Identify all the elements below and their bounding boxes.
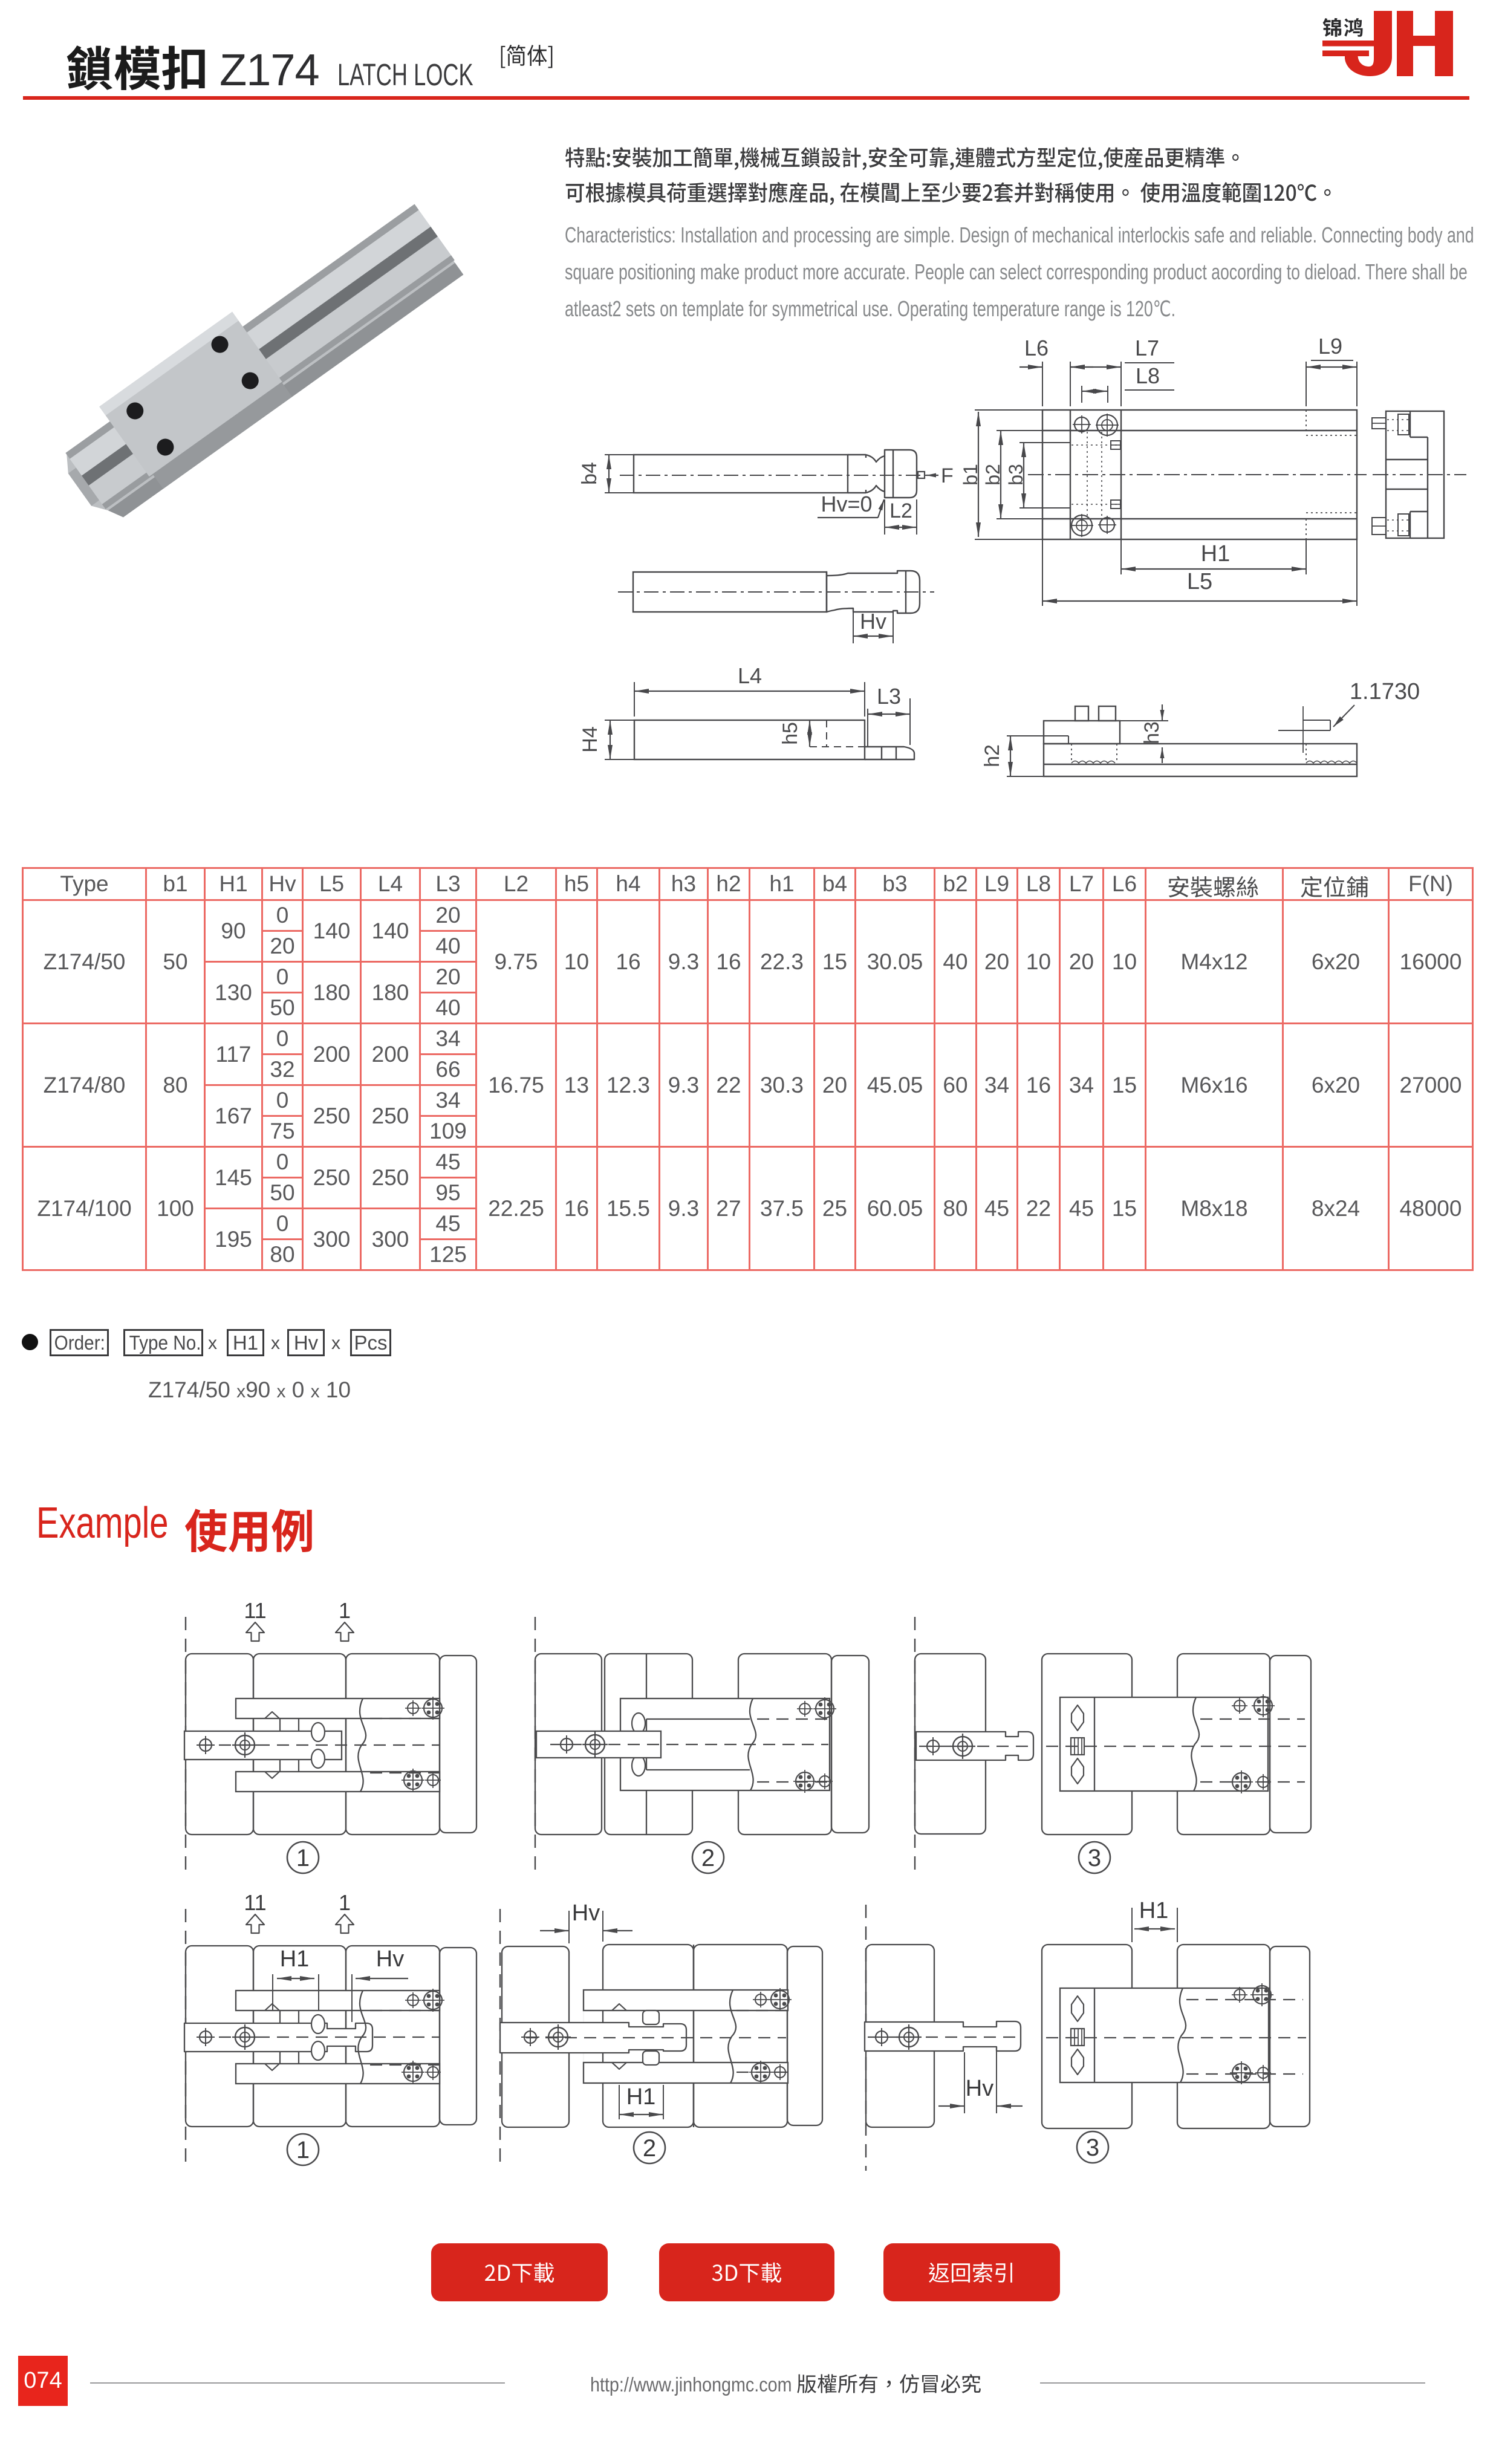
svg-text:H1: H1 [1139,1898,1169,1923]
svg-text:2: 2 [643,2135,656,2162]
svg-text:Hv: Hv [966,2076,993,2101]
svg-text:1: 1 [296,2137,310,2163]
svg-text:1: 1 [339,1890,351,1915]
svg-text:3: 3 [1086,2134,1099,2161]
svg-text:3: 3 [1088,1845,1101,1871]
svg-text:1: 1 [296,1845,310,1871]
svg-text:2: 2 [701,1845,715,1871]
svg-text:H1: H1 [626,2084,656,2110]
svg-text:11: 11 [244,1598,266,1623]
svg-text:H1: H1 [280,1946,310,1972]
svg-text:1: 1 [339,1598,351,1623]
svg-text:Hv: Hv [572,1900,600,1926]
svg-text:Hv: Hv [376,1946,404,1972]
svg-text:11: 11 [244,1890,266,1915]
